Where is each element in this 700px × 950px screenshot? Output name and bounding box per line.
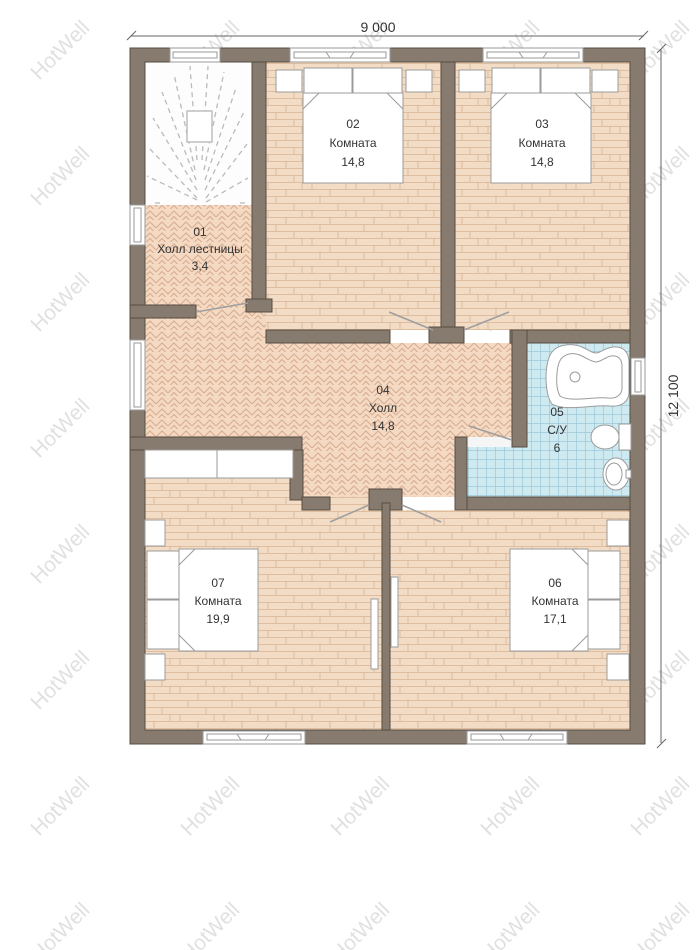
wall-hall04-room07: [130, 437, 302, 450]
wall-room06-top: [455, 497, 630, 510]
nightstand: [459, 70, 485, 92]
floor-plan-drawing: HotWellHotWellHotWellHotWellHotWellHotWe…: [0, 0, 700, 950]
toilet-tank: [619, 424, 631, 450]
window-hall01: [130, 205, 145, 245]
nightstand: [607, 520, 629, 546]
room-03-area: 14,8: [530, 155, 554, 169]
wall-stair-room02: [252, 62, 266, 312]
room-03-name: Комната: [519, 136, 566, 150]
pillow: [588, 551, 620, 599]
wall-cap-stair: [246, 299, 272, 312]
radiator: [371, 599, 378, 669]
room-06-name: Комната: [532, 594, 579, 608]
window-stairwell: [170, 48, 220, 62]
nightstand: [607, 654, 629, 680]
room-05-name: С/У: [547, 423, 567, 437]
pillow: [147, 551, 179, 599]
stair-landing: [187, 111, 212, 142]
room-06-number: 06: [548, 576, 562, 590]
window-room07: [203, 731, 305, 744]
wall-room02-hall: [266, 330, 390, 343]
dimension-width-text: 9 000: [360, 19, 395, 35]
floor-plan-page: HotWellHotWellHotWellHotWellHotWellHotWe…: [0, 0, 700, 950]
room-02-name: Комната: [330, 136, 377, 150]
room-02-area: 14,8: [341, 155, 365, 169]
room-01-name: Холл лестницы: [157, 242, 243, 256]
pillow: [353, 68, 402, 93]
room-04-area: 14,8: [371, 419, 395, 433]
room-07-number: 07: [211, 576, 225, 590]
room-04-name: Холл: [369, 401, 397, 415]
sink-tap: [626, 470, 631, 478]
room-04-number: 04: [376, 383, 390, 397]
wardrobe: [145, 450, 293, 478]
window-room02: [290, 48, 390, 62]
wall-room02-room03: [441, 62, 455, 330]
sink-basin: [606, 463, 622, 485]
wall-stub-rooms-doors: [429, 327, 464, 343]
nightstand: [145, 654, 165, 680]
room-05-area: 6: [554, 441, 561, 455]
hall-04-floor-east: [455, 343, 512, 437]
window-bathroom: [631, 358, 645, 395]
nightstand: [276, 70, 302, 92]
pillow: [588, 600, 620, 649]
room-03-number: 03: [535, 117, 549, 131]
room-01-area: 3,4: [192, 259, 209, 273]
room-01-number: 01: [193, 225, 207, 239]
pillow: [304, 68, 352, 93]
wall-bathroom-west-high: [512, 330, 527, 447]
hall-04-floor-mid-left: [266, 343, 302, 437]
wall-bathroom-west-low: [455, 437, 467, 510]
room-07-area: 19,9: [206, 612, 230, 626]
room-05-number: 05: [550, 405, 564, 419]
window-room06: [467, 731, 567, 744]
pillow: [147, 600, 179, 649]
wall-room07-top: [302, 497, 330, 510]
pillow: [492, 68, 540, 93]
nightstand: [145, 520, 165, 546]
bathtub-drain: [570, 372, 580, 382]
radiator: [391, 577, 398, 647]
bathtub-rim: [557, 354, 622, 400]
toilet-bowl: [591, 425, 619, 449]
nightstand: [406, 70, 432, 92]
hall-04-floor-west: [145, 312, 266, 437]
room-07-name: Комната: [195, 594, 242, 608]
wall-room03-bathroom: [510, 330, 630, 343]
wall-room06-room07: [382, 503, 390, 730]
wall-hall01-hall04: [130, 305, 196, 318]
window-room03: [483, 48, 583, 62]
nightstand: [592, 70, 618, 92]
pillow: [541, 68, 590, 93]
dimension-height-text: 12 100: [665, 374, 681, 417]
room-06-area: 17,1: [543, 612, 567, 626]
window-hall04: [130, 340, 145, 410]
room-02-number: 02: [346, 117, 360, 131]
